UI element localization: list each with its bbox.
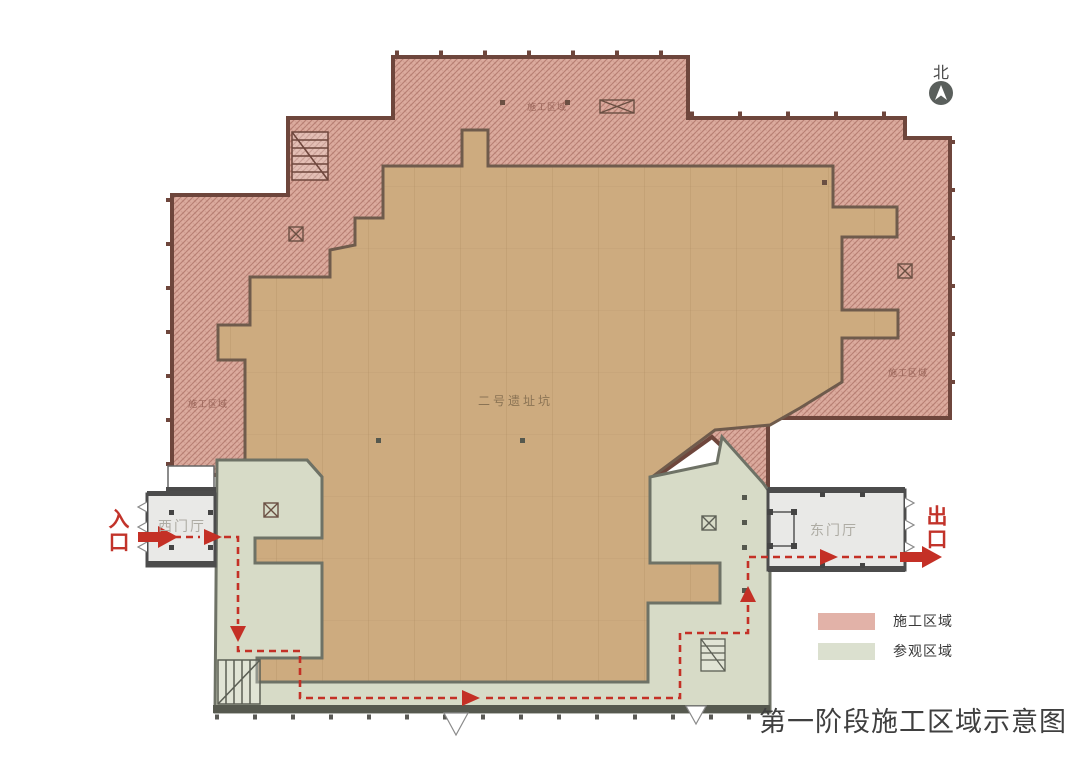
west-hall (138, 466, 216, 566)
legend-swatch-visitor (818, 643, 875, 660)
legend-swatch-construction (818, 613, 875, 630)
floor-plan-diagram: 入口 出口 西门厅 东门厅 二号遗址坑 施工区域 施工区域 施工区域 北 施工区… (0, 0, 1080, 764)
legend-label-construction: 施工区域 (893, 611, 953, 631)
west-hall-doors (138, 502, 147, 552)
legend-label-visitor: 参观区域 (893, 641, 953, 661)
north-compass-icon (929, 81, 953, 105)
legend: 施工区域 参观区域 (818, 612, 953, 672)
page-title: 第一阶段施工区域示意图 (758, 700, 1068, 739)
east-hall-doors (905, 498, 914, 552)
east-hall (767, 487, 914, 572)
legend-item-construction: 施工区域 (818, 612, 953, 630)
stairs-southwest (218, 660, 260, 704)
legend-item-visitor: 参观区域 (818, 642, 953, 660)
stairs-southeast (701, 639, 725, 671)
stairs-northwest (292, 132, 328, 180)
